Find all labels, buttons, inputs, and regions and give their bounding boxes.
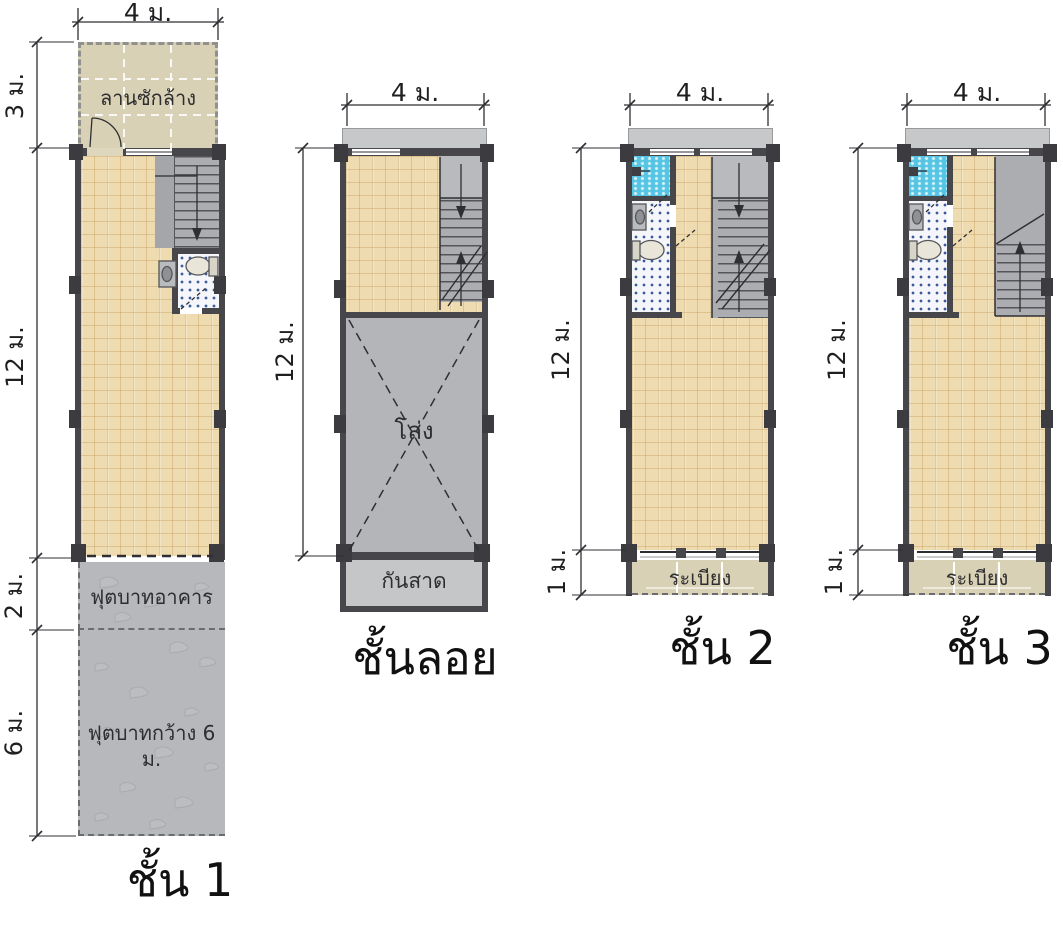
mezzanine-stair-steps (440, 200, 482, 302)
mezzanine-window-opening (352, 149, 400, 155)
column-post (764, 410, 776, 428)
column-post (336, 544, 352, 562)
column-post (1043, 144, 1057, 162)
floor3-bath-door-opening (947, 205, 953, 227)
floor2-bath-partition (670, 156, 676, 318)
floor3-awning-strip (905, 128, 1050, 150)
floor2-window-opening (700, 149, 752, 155)
floor-plan-sheet: 4 ม. 3 ม. 12 ม. 2 ม. 6 ม. ลานซักล้าง ฟุต… (0, 0, 1063, 928)
column-post (212, 144, 226, 160)
floor2-bath-wall-bottom (626, 312, 682, 318)
column-post (69, 144, 83, 160)
dim-building-depth-floor2: 12 ม. (547, 315, 573, 385)
dim-width-floor2: 4 ม. (660, 80, 740, 106)
dim-building-depth-mezzanine: 12 ม. (271, 317, 297, 387)
floor3-wall-right (1045, 148, 1051, 596)
column-post (764, 278, 776, 296)
column-post (482, 280, 494, 298)
floor2-wall-right (768, 148, 774, 596)
column-post (897, 144, 911, 162)
floor1-wall-left (75, 148, 81, 560)
title-floor1: ชั้น 1 (110, 852, 250, 908)
floor2-bath-door-opening (670, 205, 676, 227)
dim-laundry-depth: 3 ม. (1, 61, 27, 131)
mezzanine-wall-left (340, 148, 346, 612)
mezzanine-canopy-edge (340, 606, 488, 612)
dim-width-floor1: 4 ม. (108, 0, 188, 26)
column-post (621, 544, 637, 562)
column-post (71, 544, 86, 562)
dim-balcony-depth-floor2: 1 ม. (543, 537, 569, 607)
title-floor2: ชั้น 2 (650, 620, 795, 676)
mezzanine-wall-mid (340, 312, 488, 318)
mezzanine-awning-strip (342, 128, 487, 150)
dim-balcony-depth-floor3: 1 ม. (820, 537, 846, 607)
column-post (334, 280, 346, 298)
floor2-balcony (632, 560, 768, 595)
column-post (69, 276, 81, 294)
column-post (214, 276, 226, 294)
floor3-bath-partition (947, 156, 953, 318)
floor1-bathroom (178, 254, 219, 308)
mezzanine-canopy-area (346, 560, 482, 606)
floor1-entry-door-opening (87, 148, 123, 156)
floor3-bath-wall-bottom (903, 312, 959, 318)
dim-width-floor3: 4 ม. (937, 80, 1017, 106)
floor3-shower (909, 156, 947, 196)
mezzanine-stair-landing (440, 156, 482, 198)
floor2-window-opening (650, 149, 694, 155)
column-post (620, 410, 632, 428)
column-post (334, 144, 348, 162)
dim-walkway-near-depth: 2 ม. (0, 561, 26, 631)
floor3-wall-left (903, 148, 909, 596)
column-post (474, 544, 490, 562)
column-post (334, 415, 346, 433)
column-post (897, 278, 909, 296)
floor2-stair-steps (718, 200, 768, 318)
column-post (1041, 410, 1053, 428)
column-post (482, 415, 494, 433)
floor3-window-opening (977, 149, 1029, 155)
title-mezzanine: ชั้นลอย (340, 630, 510, 686)
dim-building-depth-floor3: 12 ม. (823, 315, 849, 385)
column-post (1036, 544, 1052, 562)
dim-width-mezzanine: 4 ม. (375, 80, 455, 106)
laundry-yard-area (78, 42, 218, 152)
column-post (69, 410, 81, 428)
building-walkway-area (78, 562, 225, 630)
mezzanine-void-area (346, 318, 482, 554)
dim-building-depth-floor1: 12 ม. (1, 322, 27, 392)
floor1-wall-right (219, 148, 225, 560)
column-post (1041, 278, 1053, 296)
floor3-balcony (909, 560, 1045, 595)
dim-walkway-far-depth: 6 ม. (0, 698, 26, 768)
floor2-wall-left (626, 148, 632, 596)
column-post (620, 278, 632, 296)
floor1-stair-landing (155, 156, 175, 248)
column-post (620, 144, 634, 162)
column-post (209, 544, 224, 562)
floor3-window-opening (927, 149, 971, 155)
floor2-stair-landing (712, 156, 768, 198)
column-post (480, 144, 494, 162)
floor2-bathroom (632, 201, 670, 312)
column-post (897, 410, 909, 428)
public-walkway-area (78, 630, 225, 836)
column-post (759, 544, 775, 562)
mezzanine-wall-right (482, 148, 488, 612)
floor2-shower (632, 156, 670, 196)
floor3-stair-steps (997, 244, 1045, 316)
column-post (214, 410, 226, 428)
title-floor3: ชั้น 3 (927, 620, 1063, 676)
mezzanine-wall-front (340, 552, 488, 560)
column-post (898, 544, 914, 562)
column-post (766, 144, 780, 162)
floor2-awning-strip (628, 128, 773, 150)
floor1-bath-door-opening (180, 308, 202, 314)
floor3-bathroom (909, 201, 947, 312)
floor1-stair-steps (175, 156, 219, 248)
floor1-window-opening (126, 149, 172, 155)
